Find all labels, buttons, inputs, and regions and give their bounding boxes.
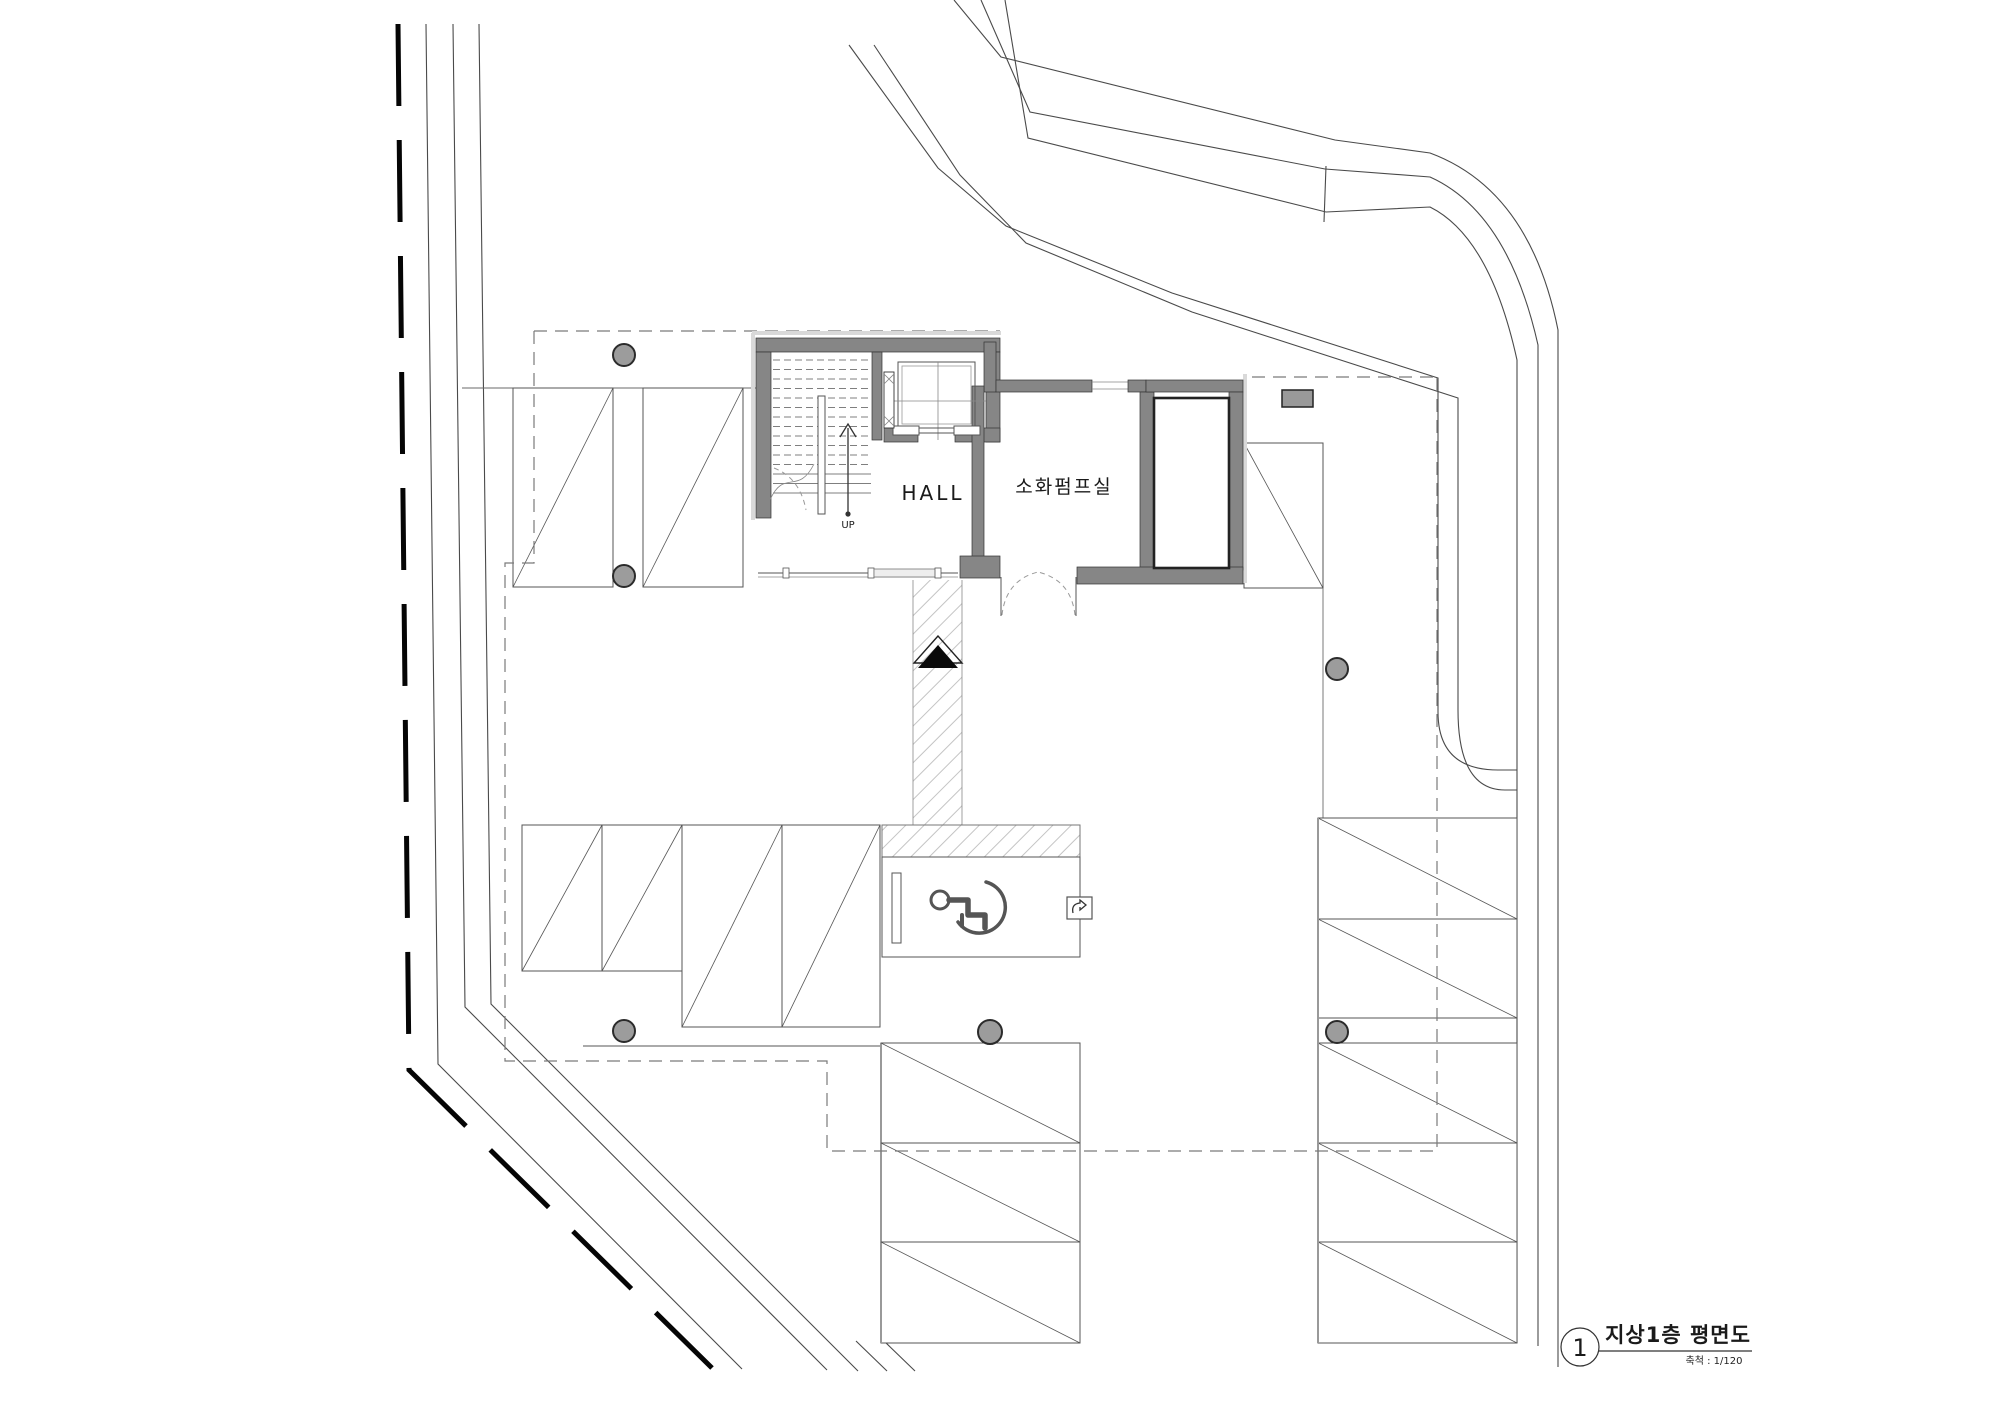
stair-arrow-origin — [845, 511, 850, 516]
wall — [756, 352, 771, 518]
tank-room — [1154, 398, 1229, 568]
pump-room-label: 소화펌프실 — [1015, 476, 1112, 498]
elevator-sill — [954, 426, 980, 435]
title-block: 1 지상1층 평면도 축척 : 1/120 — [1561, 1323, 1752, 1367]
road-edge — [426, 24, 742, 1369]
building-core: HALL 소화펌프실 UP — [752, 333, 1245, 616]
drawing-scale: 축척 : 1/120 — [1686, 1355, 1743, 1367]
wall — [996, 380, 1092, 392]
entry-walkway-hatch — [913, 578, 962, 825]
parking-stall-group — [1318, 1043, 1517, 1343]
sidewalk-hatch — [882, 825, 1080, 857]
elevator-counterweight — [884, 372, 894, 428]
bollard — [978, 1020, 1002, 1044]
road-edge — [479, 24, 858, 1371]
bollard — [613, 344, 635, 366]
door-jamb — [935, 568, 941, 578]
up-label: UP — [841, 520, 854, 531]
wall — [1128, 380, 1146, 392]
parking-stall-group — [881, 1043, 1080, 1343]
door-jamb — [783, 568, 789, 578]
parking-stall-group — [1318, 818, 1517, 1018]
bollard — [1326, 658, 1348, 680]
elevator-sill — [893, 426, 919, 435]
site-boundary-line — [398, 24, 712, 1368]
wall — [1140, 392, 1154, 578]
accessible-parking — [882, 857, 1092, 957]
wall — [756, 338, 1000, 352]
utility-pad — [1282, 390, 1313, 407]
hall-label: HALL — [901, 481, 964, 505]
entrance-door — [874, 569, 936, 577]
wall — [1077, 567, 1243, 584]
stair-handrail — [818, 396, 825, 514]
wall — [872, 352, 882, 440]
detail-number: 1 — [1572, 1334, 1587, 1362]
wall — [972, 386, 984, 577]
bollard — [613, 565, 635, 587]
floor-plan-sheet: HALL 소화펌프실 UP 1 지상1층 평면도 축척 : 1/120 — [0, 0, 2000, 1412]
road-tick — [1324, 166, 1326, 222]
floor-plan-drawing: HALL 소화펌프실 UP 1 지상1층 평면도 축척 : 1/120 — [0, 0, 2000, 1412]
bollard — [1326, 1021, 1348, 1043]
accessible-stall — [882, 857, 1080, 957]
wall — [960, 556, 1000, 578]
door-jamb — [868, 568, 874, 578]
road-edge — [856, 1341, 887, 1371]
drawing-title: 지상1층 평면도 — [1605, 1323, 1751, 1347]
wall — [1229, 392, 1243, 570]
bollard — [613, 1020, 635, 1042]
wheel-stop — [892, 873, 901, 943]
wall — [984, 342, 996, 392]
road-edge — [884, 1341, 915, 1371]
walkways — [882, 578, 1080, 857]
wall — [1146, 380, 1243, 392]
